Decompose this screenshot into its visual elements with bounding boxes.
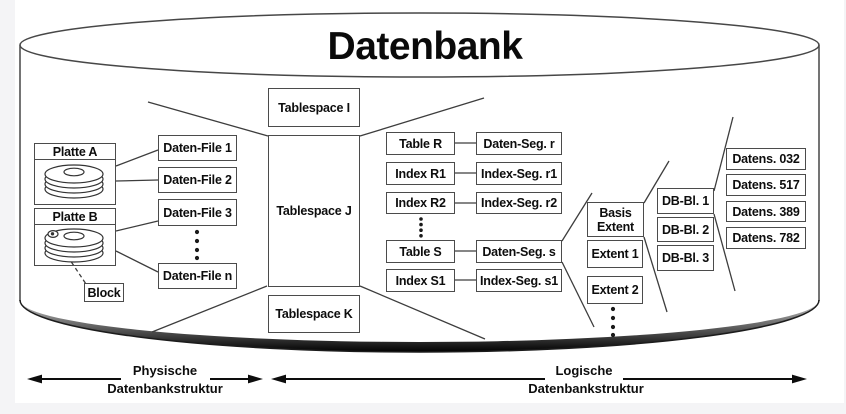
database-title: Datenbank (260, 22, 590, 72)
segment-box: Daten-Seg. s (476, 240, 562, 263)
tablespace-box: Tablespace I (268, 88, 360, 127)
record-box: Datens. 032 (726, 148, 806, 170)
db-block-box: DB-Bl. 2 (657, 217, 714, 242)
index-label: Index R2 (395, 196, 446, 210)
index-box: Index R1 (386, 162, 455, 185)
daten-file-label: Daten-File 2 (163, 173, 231, 187)
daten-file-box: Daten-File 2 (158, 167, 237, 193)
extent-box: Extent 2 (587, 276, 643, 304)
extent-ellipsis (611, 307, 615, 337)
block-label: Block (87, 286, 120, 300)
extent-label: Extent 1 (591, 247, 638, 261)
daten-file-label: Daten-File 1 (163, 141, 231, 155)
extent-box: Extent 1 (587, 240, 643, 268)
index-label: Index S1 (396, 274, 446, 288)
table-label: Table R (399, 137, 442, 151)
extent-box: Basis Extent (587, 202, 644, 237)
segment-label: Index-Seg. r1 (481, 167, 557, 181)
segment-label: Daten-Seg. s (482, 245, 555, 259)
cylinder-bottom-shadow (20, 300, 819, 352)
segment-box: Daten-Seg. r (476, 132, 562, 155)
daten-file-ellipsis (195, 230, 199, 260)
daten-file-box: Daten-File 3 (158, 199, 237, 226)
daten-file-label: Daten-File 3 (163, 206, 231, 220)
extent-label: Extent 2 (591, 283, 638, 297)
disk-box-platte-b: Platte B (34, 208, 116, 266)
segment-label: Index-Seg. s1 (480, 274, 558, 288)
tablespace-label: Tablespace J (276, 204, 351, 218)
legend-logical-line2: Datenbankstruktur (516, 381, 656, 396)
record-box: Datens. 389 (726, 201, 806, 222)
table-box: Table R (386, 132, 455, 155)
tablespace-box: Tablespace K (268, 295, 360, 333)
record-label: Datens. 389 (732, 205, 799, 219)
block-box: Block (84, 283, 124, 302)
segment-box: Index-Seg. s1 (476, 269, 562, 292)
tablespace-label: Tablespace I (278, 101, 350, 115)
db-block-box: DB-Bl. 1 (657, 188, 714, 214)
table-label: Table S (399, 245, 441, 259)
segment-label: Daten-Seg. r (483, 137, 554, 151)
index-label: Index R1 (395, 167, 446, 181)
index-box: Index S1 (386, 269, 455, 292)
legend-logical-line1: Logische (524, 363, 644, 378)
db-block-label: DB-Bl. 1 (662, 194, 709, 208)
record-label: Datens. 517 (732, 178, 799, 192)
extent-label: Basis Extent (588, 206, 643, 234)
legend-physical-line2: Datenbankstruktur (95, 381, 235, 396)
record-box: Datens. 517 (726, 174, 806, 196)
tablespace-box: Tablespace J (268, 135, 360, 287)
db-block-label: DB-Bl. 2 (662, 223, 709, 237)
table-ellipsis (419, 217, 423, 237)
record-label: Datens. 032 (732, 152, 799, 166)
record-label: Datens. 782 (732, 231, 799, 245)
segment-label: Index-Seg. r2 (481, 196, 557, 210)
diagram-canvas: Datenbank Platte A Platte B Block Daten-… (0, 0, 846, 414)
segment-box: Index-Seg. r2 (476, 192, 562, 214)
legend-physical-line1: Physische (105, 363, 225, 378)
daten-file-box: Daten-File n (158, 263, 237, 289)
segment-box: Index-Seg. r1 (476, 162, 562, 185)
disk-box-platte-a: Platte A (34, 143, 116, 205)
record-box: Datens. 782 (726, 227, 806, 249)
daten-file-box: Daten-File 1 (158, 135, 237, 161)
table-box: Table S (386, 240, 455, 263)
disk-label: Platte B (35, 209, 115, 225)
index-box: Index R2 (386, 192, 455, 214)
daten-file-label: Daten-File n (163, 269, 232, 283)
tablespace-label: Tablespace K (275, 307, 352, 321)
db-block-box: DB-Bl. 3 (657, 245, 714, 271)
db-block-label: DB-Bl. 3 (662, 251, 709, 265)
disk-label: Platte A (35, 144, 115, 160)
